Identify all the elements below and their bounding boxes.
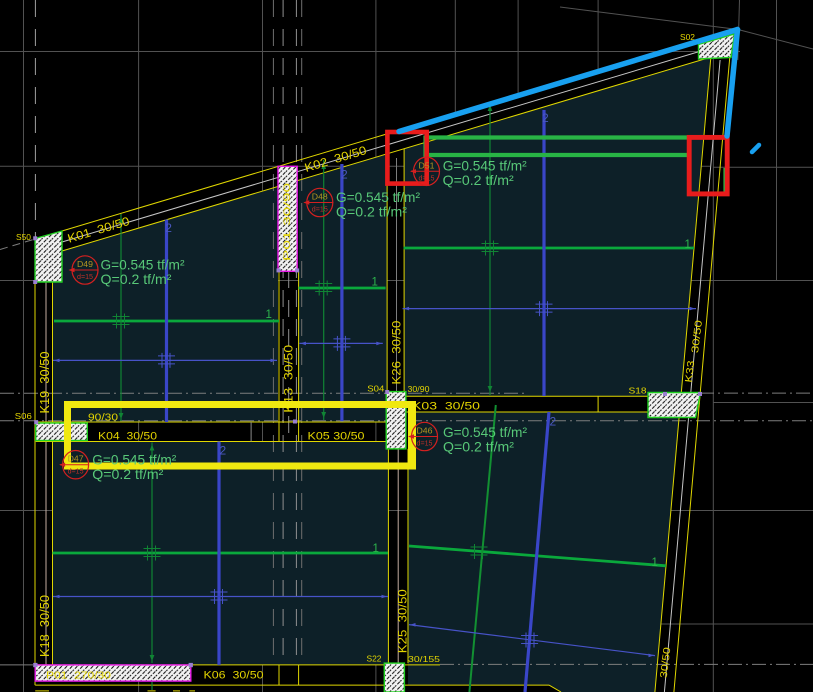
svg-text:Q=0.2 tf/m²: Q=0.2 tf/m² [443,438,514,454]
svg-text:D46: D46 [417,427,434,436]
svg-text:d=15: d=15 [417,439,433,448]
svg-text:S04: S04 [367,383,384,393]
svg-text:K05 30/50: K05 30/50 [308,431,365,443]
svg-text:30/90: 30/90 [408,384,430,394]
svg-text:S06: S06 [15,411,32,421]
svg-text:1: 1 [652,557,658,569]
svg-text:2: 2 [542,111,549,125]
svg-text:d=15: d=15 [312,205,328,214]
svg-text:P01 30/90: P01 30/90 [282,183,292,261]
svg-text:2: 2 [341,168,348,182]
svg-text:S18: S18 [629,386,647,396]
svg-text:Q=0.2 tf/m²: Q=0.2 tf/m² [443,172,514,188]
svg-text:2: 2 [550,415,557,429]
svg-text:1: 1 [685,239,691,251]
svg-text:K04 30/50: K04 30/50 [98,431,157,443]
svg-text:K18 30/50: K18 30/50 [38,595,52,657]
svg-text:90/30: 90/30 [88,413,119,424]
svg-text:D48: D48 [312,193,329,202]
svg-text:D51: D51 [419,161,436,170]
svg-text:P01 270/30: P01 270/30 [46,670,111,682]
svg-text:S50: S50 [16,232,31,242]
svg-text:d=15: d=15 [68,467,84,476]
svg-text:1: 1 [373,543,379,555]
svg-text:S22: S22 [367,654,382,664]
svg-text:Q=0.2 tf/m²: Q=0.2 tf/m² [101,271,172,287]
svg-text:D47: D47 [68,455,85,464]
svg-text:K03 30/50: K03 30/50 [412,400,480,412]
svg-text:D49: D49 [77,260,94,269]
svg-text:2: 2 [165,221,172,235]
svg-text:K25 30/50: K25 30/50 [396,589,410,653]
svg-text:d=15: d=15 [77,272,93,281]
svg-text:1: 1 [372,277,378,289]
svg-text:K19 30/50: K19 30/50 [38,351,52,413]
svg-text:K26 30/50: K26 30/50 [390,320,404,384]
svg-text:Q=0.2 tf/m²: Q=0.2 tf/m² [92,466,163,482]
svg-text:2: 2 [220,444,227,458]
svg-text:Q=0.2 tf/m²: Q=0.2 tf/m² [336,204,407,220]
svg-text:30/155: 30/155 [408,654,440,664]
svg-text:d=15: d=15 [419,173,435,182]
svg-text:1: 1 [266,309,272,321]
svg-text:K06 30/50: K06 30/50 [204,670,264,682]
